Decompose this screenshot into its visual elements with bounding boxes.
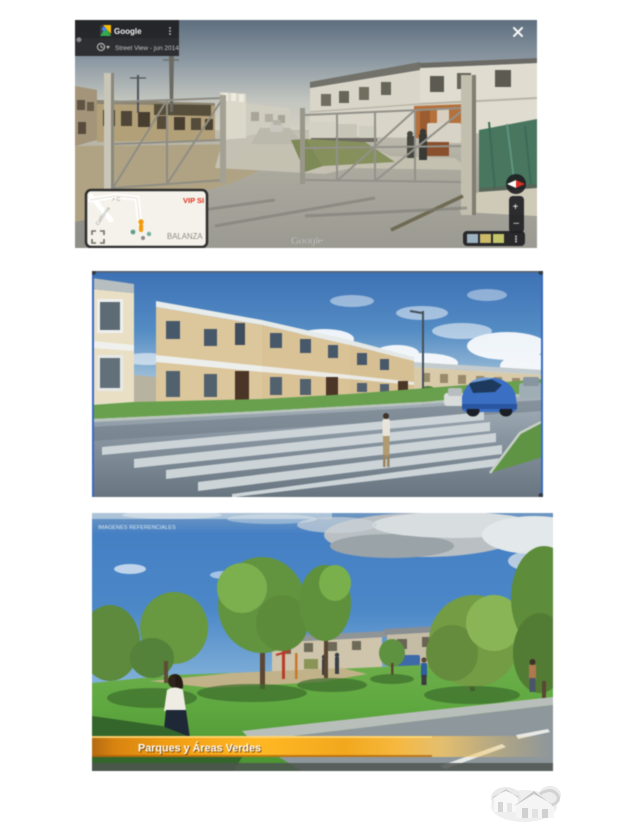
svg-text:–: –	[514, 218, 520, 229]
svg-text:Street View - jun 2014: Street View - jun 2014	[115, 45, 179, 52]
svg-text:⊕: ⊕	[76, 37, 82, 44]
svg-text:Google: Google	[114, 27, 142, 36]
svg-text:IMAGENES REFERENCIALES: IMAGENES REFERENCIALES	[98, 525, 176, 531]
svg-text:VIP SI: VIP SI	[183, 196, 204, 205]
svg-text:Parques y Áreas Verdes: Parques y Áreas Verdes	[138, 742, 261, 755]
svg-text:↗ C: ↗ C	[111, 197, 121, 203]
svg-text:BALANZA: BALANZA	[167, 232, 203, 241]
svg-text:+: +	[513, 202, 519, 213]
svg-text:Google: Google	[291, 236, 324, 247]
